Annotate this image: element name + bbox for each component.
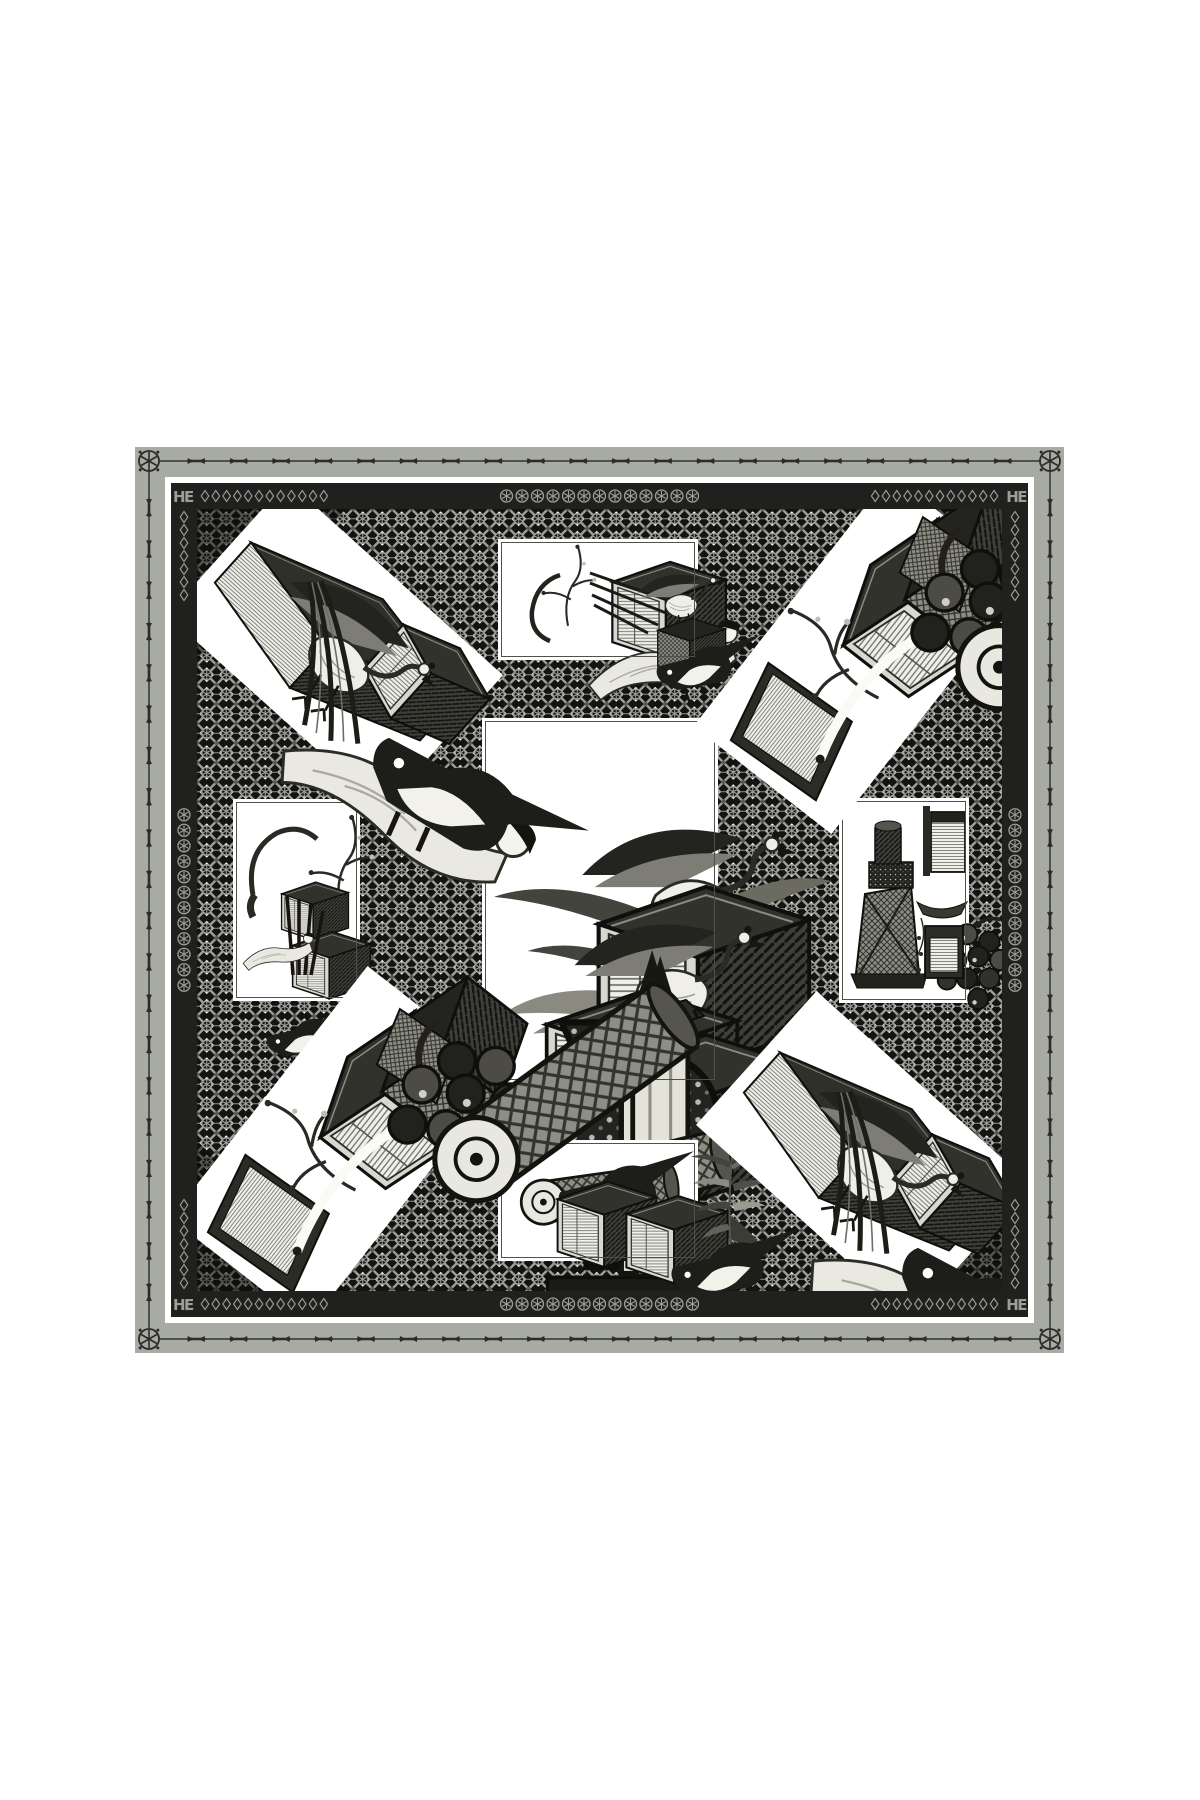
scarf-vignette-right-middle [839,798,969,1003]
lattice-field [197,509,1002,1291]
vignette-illustration-right-middle [839,798,969,1003]
brand-monogram: HE [1006,488,1027,506]
scarf-vignette-top-center [498,539,698,660]
brand-monogram: HE [173,1296,194,1314]
product-image-canvas: HEHEHEHE [0,0,1200,1800]
brand-monogram: HE [1006,1296,1027,1314]
vignette-illustration-top-center [498,539,698,660]
scarf-vignette-left-middle [233,799,360,1001]
vignette-illustration-left-middle [233,799,360,1001]
brand-monogram: HE [173,488,194,506]
silk-scarf-artwork: HEHEHEHE [135,447,1064,1353]
